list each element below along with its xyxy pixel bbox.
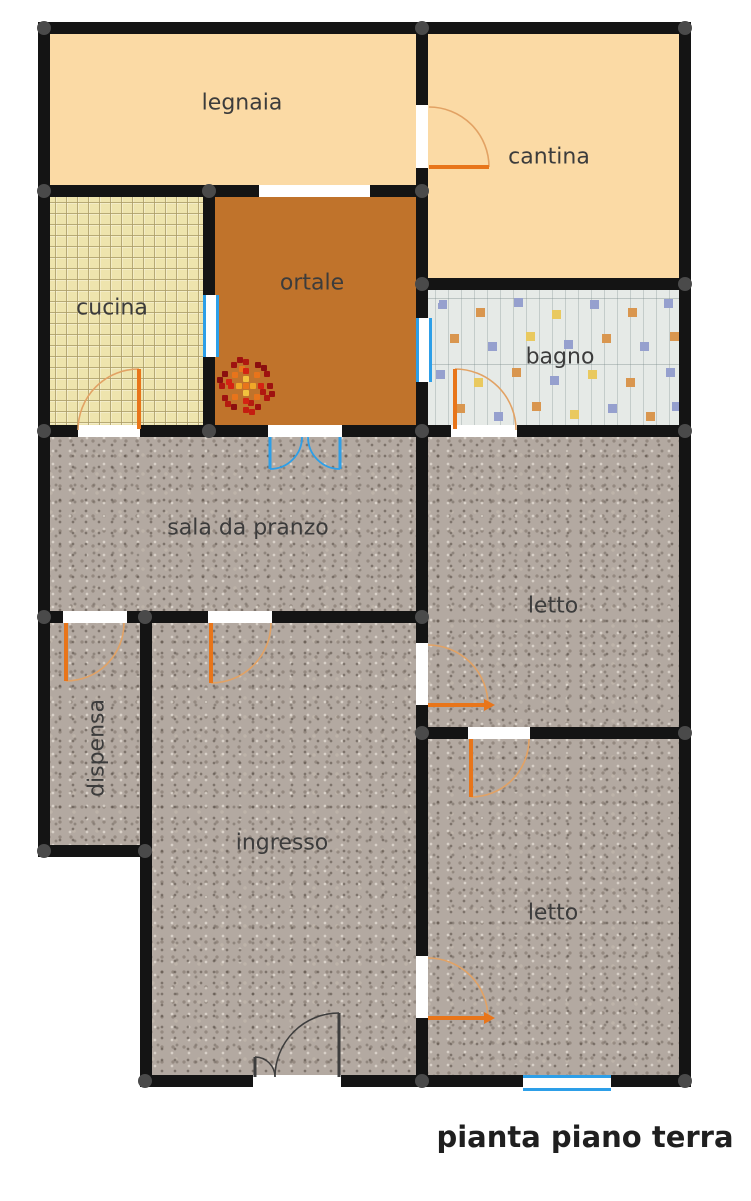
label-dispensa: dispensa <box>85 699 110 797</box>
cucina-door-arc <box>78 369 139 430</box>
label-letto-2: letto <box>528 901 578 926</box>
label-ortale: ortale <box>280 271 344 296</box>
cantina-door-arc <box>429 107 489 167</box>
label-sala-da-pranzo: sala da pranzo <box>167 516 328 541</box>
entrance-door-small-arc <box>255 1057 275 1077</box>
label-letto-1: letto <box>528 594 578 619</box>
label-cucina: cucina <box>76 296 148 321</box>
label-cantina: cantina <box>508 145 590 170</box>
doors-overlay <box>0 0 751 1201</box>
french-door-right-arc <box>308 437 340 469</box>
floor-plan: legnaia cantina cucina ortale bagno sala… <box>0 0 751 1201</box>
letto2-door-b-arrow <box>484 1012 495 1024</box>
letto1-door-arc <box>428 645 488 705</box>
ingresso-door-arc <box>211 623 271 683</box>
letto2-door-a-arc <box>471 739 529 797</box>
label-legnaia: legnaia <box>202 91 283 116</box>
bagno-door-arc <box>455 369 516 430</box>
dispensa-door-arc <box>66 623 124 681</box>
label-bagno: bagno <box>526 345 595 370</box>
letto1-door-arrow <box>484 699 495 711</box>
letto2-door-b-arc <box>428 958 488 1018</box>
page-title: pianta piano terra <box>420 1120 750 1154</box>
french-door-left-arc <box>270 437 302 469</box>
entrance-door-main-arc <box>275 1013 339 1077</box>
label-ingresso: ingresso <box>236 831 329 856</box>
